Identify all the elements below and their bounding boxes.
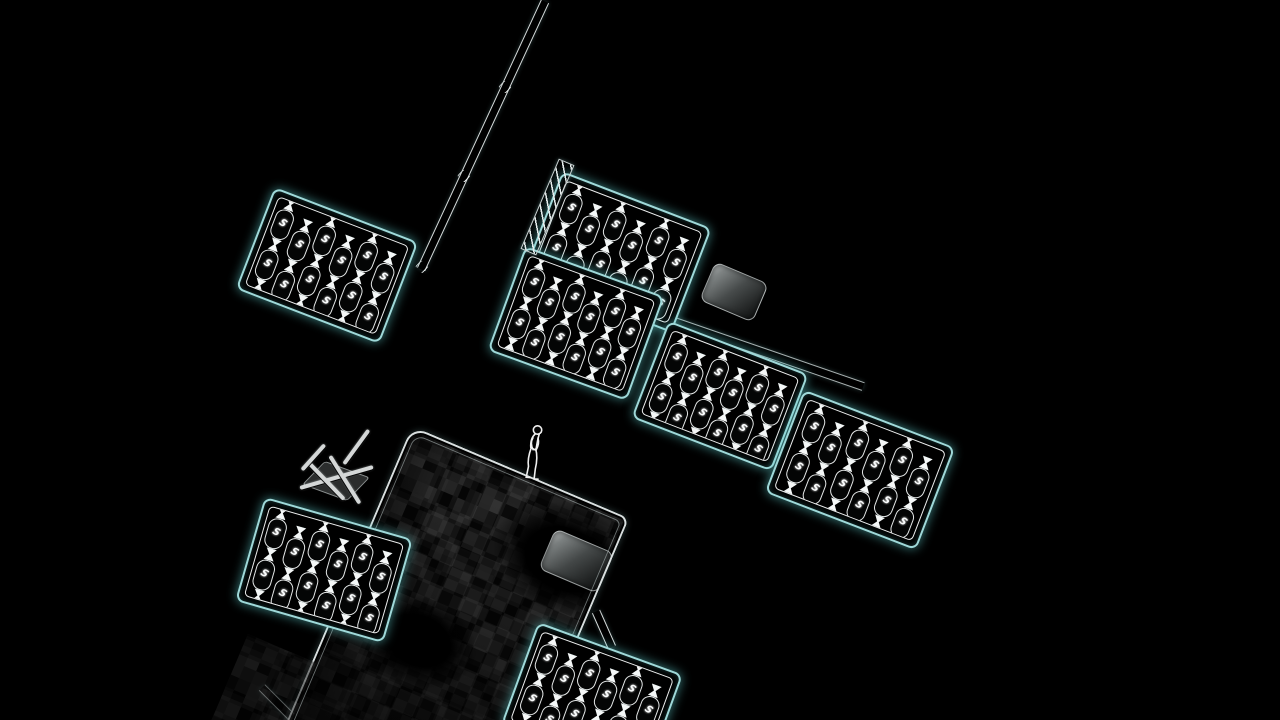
bottle[interactable] <box>800 472 829 508</box>
rack-clamp <box>519 356 533 371</box>
rack-clamp <box>888 536 903 542</box>
bottle[interactable] <box>904 465 933 501</box>
wall-top-joint <box>457 169 470 182</box>
rack-clamp <box>269 608 283 623</box>
person[interactable] <box>518 422 556 482</box>
bottle-shelf-1[interactable] <box>236 187 419 344</box>
rack-clamp <box>844 519 859 534</box>
bottle[interactable] <box>269 577 296 612</box>
rack-clamp <box>268 298 283 313</box>
bottle[interactable] <box>844 488 873 524</box>
bottle-shelf-1-rack <box>245 196 410 335</box>
chair-frame-bar <box>342 429 370 465</box>
bottle[interactable] <box>312 590 339 625</box>
rack-clamp <box>355 633 369 635</box>
wall-top-joint <box>498 80 511 93</box>
rack-clamp <box>702 447 717 462</box>
bottle[interactable] <box>367 561 394 596</box>
bottle-shelf-4-rack <box>640 330 799 463</box>
game-viewport <box>0 0 1280 720</box>
wall-top-joint <box>415 260 428 273</box>
folding-chair[interactable] <box>300 450 378 516</box>
bottle[interactable] <box>355 602 382 635</box>
bottle[interactable] <box>888 505 917 541</box>
bottle-shelf-7-rack <box>510 630 674 720</box>
person-outline-icon <box>518 422 556 482</box>
bottle-shelf-5-rack <box>774 399 947 542</box>
rack-clamp <box>661 432 676 447</box>
rack-clamp <box>352 330 367 334</box>
rack-clamp <box>310 314 325 329</box>
counter-back[interactable] <box>699 261 769 322</box>
rack-clamp <box>800 502 815 517</box>
rack-clamp <box>560 371 574 386</box>
